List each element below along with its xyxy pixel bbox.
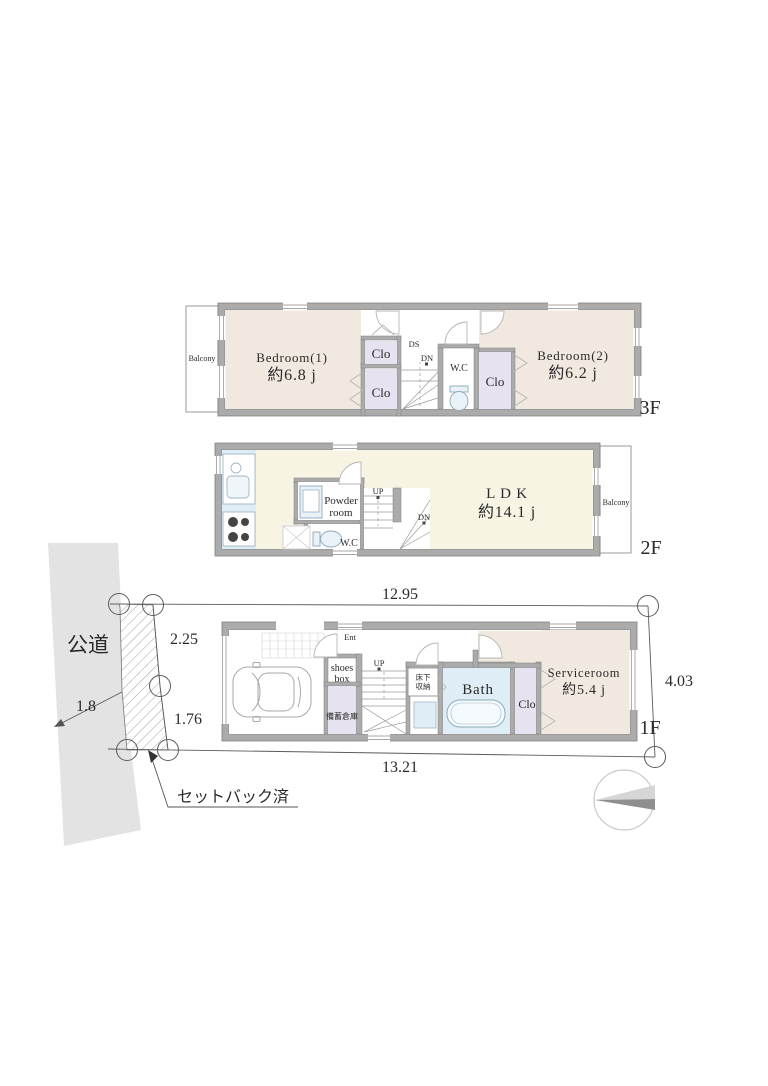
dim-right-label: 4.03: [665, 673, 693, 690]
floor2-label: 2F: [640, 537, 661, 559]
road-label: 公道: [67, 633, 109, 657]
floor3-label: 3F: [639, 397, 660, 419]
wall: [360, 478, 364, 549]
wall: [438, 348, 443, 409]
floor2-down-label: DN: [418, 512, 430, 522]
powder-room-label1: Powder: [324, 495, 358, 507]
wall: [294, 482, 298, 524]
setback-dim1-label: 2.25: [170, 631, 198, 648]
stove-icon: [223, 512, 255, 546]
wall: [438, 662, 443, 734]
ldk-name: L D K: [486, 486, 528, 502]
floor1-serviceroom: [541, 630, 630, 734]
wall: [397, 336, 401, 416]
setback-area-hatch: [119, 604, 168, 750]
wall: [536, 662, 541, 734]
floor3-down-label: DN: [421, 353, 433, 363]
wall: [479, 348, 515, 352]
wall: [361, 340, 365, 416]
bath-label: Bath: [462, 682, 494, 698]
setback-note-label: セットバック済: [177, 788, 289, 806]
floor2-plan: Balcony: [215, 443, 662, 560]
toilet-icon: [313, 531, 342, 547]
floor1-closet-label: Clo: [518, 697, 535, 711]
serviceroom-size: 約5.4 j: [562, 682, 606, 698]
approach-opening: [276, 621, 324, 631]
wall: [393, 488, 401, 522]
floor-plan-page: 公道 12.95 13.21 4.03 2.25 1.76 1.8 セットバック…: [0, 0, 768, 1086]
washbasin-icon: [300, 486, 322, 518]
wall: [474, 348, 479, 409]
closet2-label: Clo: [372, 385, 391, 400]
floor3-balcony-label: Balcony: [189, 354, 216, 363]
bedroom1-size: 約6.8 j: [267, 366, 316, 384]
floor3-plan: Balcony: [186, 303, 661, 420]
wall: [510, 662, 515, 734]
wall: [438, 344, 479, 348]
dim-bottom-label: 13.21: [382, 759, 418, 776]
wall: [478, 663, 541, 668]
washer-space: [414, 702, 436, 728]
up-marker: [378, 668, 381, 671]
bedroom2-size: 約6.2 j: [548, 364, 597, 382]
kitchen-sink-icon: [223, 454, 255, 504]
serviceroom-name: Serviceroom: [548, 666, 621, 680]
dimension-line-top: [110, 604, 648, 606]
toilet-icon: [450, 386, 468, 411]
bathtub-icon: [447, 700, 505, 727]
ldk-size: 約14.1 j: [478, 503, 536, 521]
wall: [356, 654, 362, 734]
powder-room-label2: room: [329, 507, 353, 519]
floor1-up-label: UP: [374, 658, 385, 668]
stock-storage-label: 備蓄倉庫: [326, 711, 358, 721]
bedroom2-name: Bedroom(2): [537, 348, 609, 363]
wall: [361, 336, 401, 340]
underfloor-label2: 収納: [416, 681, 431, 691]
wall: [294, 520, 364, 524]
floor2-wc-label: W.C: [340, 538, 358, 549]
setback-dim2-label: 1.76: [174, 711, 202, 728]
refrigerator-space: [283, 526, 310, 549]
down-marker: [425, 363, 428, 366]
compass-icon: [594, 770, 655, 830]
bedroom1-name: Bedroom(1): [256, 350, 328, 365]
floor1-label: 1F: [639, 717, 660, 739]
floor1-stock-storage: [328, 686, 356, 734]
closet3-label: Clo: [486, 374, 505, 389]
floor3-wc-label: W.C: [450, 363, 468, 374]
floor-plan-canvas: 公道 12.95 13.21 4.03 2.25 1.76 1.8 セットバック…: [0, 0, 768, 1086]
road-width-label: 1.8: [76, 698, 96, 715]
wall: [324, 654, 328, 734]
wall: [511, 352, 515, 409]
wall: [361, 364, 401, 368]
car-icon: [233, 663, 311, 722]
closet1-label: Clo: [372, 346, 391, 361]
duct-label: DS: [409, 339, 420, 349]
wall: [473, 650, 478, 668]
shoes-box-label2: box: [335, 674, 350, 685]
down-marker: [423, 522, 426, 525]
up-marker: [377, 496, 380, 499]
entrance-label: Ent: [344, 632, 356, 642]
floor2-balcony-label: Balcony: [603, 498, 630, 507]
floor2-up-label: UP: [373, 486, 384, 496]
floor1-plan: Ent shoes box UP 床下 収納 Bath 備蓄倉庫 Service…: [221, 621, 661, 742]
underfloor-label1: 床下: [416, 672, 431, 682]
shoes-box-label1: shoes: [331, 663, 353, 674]
dimension-line-bottom: [108, 749, 655, 757]
dim-top-label: 12.95: [382, 586, 418, 603]
